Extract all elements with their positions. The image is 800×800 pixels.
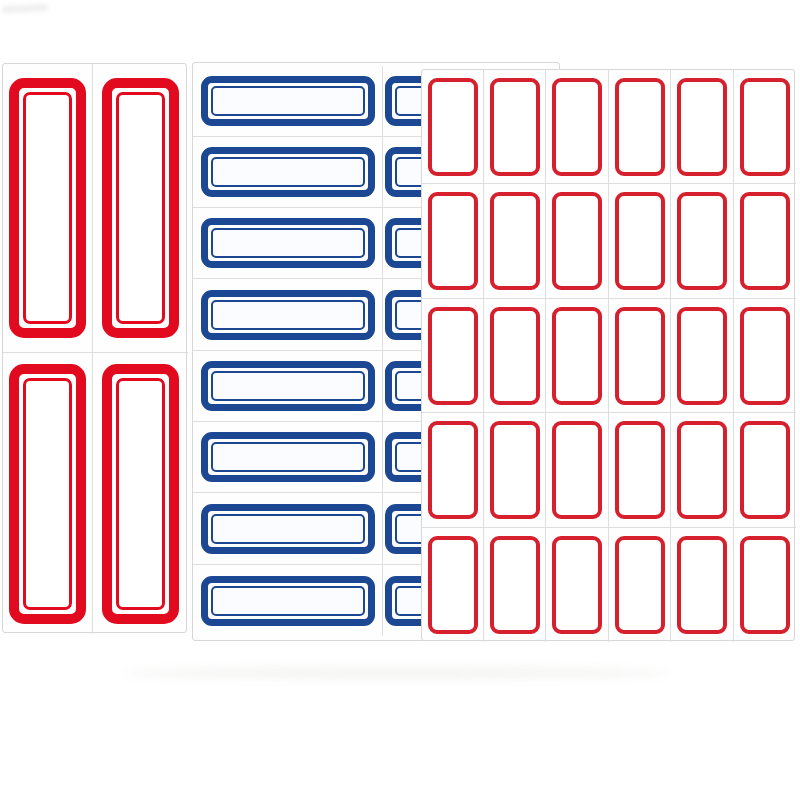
blank-sticker-label <box>677 192 727 290</box>
sticker-label-inner-frame <box>211 300 365 330</box>
blank-sticker-label <box>677 78 727 176</box>
sticker-label-inner-frame <box>211 586 365 616</box>
label-cell <box>3 64 93 353</box>
label-cell <box>93 353 188 634</box>
sheet-red-tall-labels <box>2 63 187 633</box>
label-cell <box>734 528 796 642</box>
label-cell <box>546 299 609 413</box>
label-cell <box>422 70 484 184</box>
blank-sticker-label <box>201 504 375 554</box>
blank-sticker-label <box>201 147 375 197</box>
label-cell <box>422 299 484 413</box>
label-cell <box>193 279 383 351</box>
label-cell <box>422 528 484 642</box>
sticker-label-inner-frame <box>211 371 365 401</box>
sheet-red-small-labels <box>421 69 795 641</box>
blank-sticker-label <box>490 78 540 176</box>
sticker-label-inner-frame <box>211 157 365 187</box>
blank-sticker-label <box>677 421 727 519</box>
blank-sticker-label <box>428 78 478 176</box>
blank-sticker-label <box>102 364 179 624</box>
sticker-label-inner-frame <box>211 442 365 472</box>
label-cell <box>422 413 484 528</box>
label-cell <box>3 353 93 634</box>
blank-sticker-label <box>201 361 375 411</box>
blank-sticker-label <box>201 576 375 626</box>
blank-sticker-label <box>201 218 375 268</box>
sticker-label-inner-frame <box>116 378 165 610</box>
label-cell <box>484 528 546 642</box>
sheet-red-small-labels-grid <box>422 70 796 642</box>
blank-sticker-label <box>490 536 540 634</box>
label-cell <box>484 70 546 184</box>
label-cell <box>93 64 188 353</box>
sheet-shadow <box>125 667 670 679</box>
label-cell <box>609 184 671 299</box>
label-cell <box>671 70 734 184</box>
label-cell <box>671 413 734 528</box>
label-cell <box>734 413 796 528</box>
label-cell <box>671 299 734 413</box>
label-cell <box>484 413 546 528</box>
label-cell <box>193 137 383 208</box>
blank-sticker-label <box>490 192 540 290</box>
label-cell <box>484 299 546 413</box>
label-cell <box>193 208 383 279</box>
blank-sticker-label <box>9 364 86 624</box>
sheet-red-tall-labels-grid <box>3 64 188 634</box>
blank-sticker-label <box>552 78 602 176</box>
label-cell <box>546 184 609 299</box>
blank-sticker-label <box>740 421 790 519</box>
blank-sticker-label <box>490 307 540 405</box>
label-cell <box>671 528 734 642</box>
blank-sticker-label <box>677 536 727 634</box>
label-cell <box>193 351 383 422</box>
blank-sticker-label <box>677 307 727 405</box>
blank-sticker-label <box>428 192 478 290</box>
label-cell <box>609 528 671 642</box>
label-cell <box>193 66 383 137</box>
label-cell <box>422 184 484 299</box>
blank-sticker-label <box>102 78 179 338</box>
blank-sticker-label <box>201 290 375 340</box>
photo-artifact-smudge <box>2 4 48 13</box>
blank-sticker-label <box>428 536 478 634</box>
label-cell <box>734 184 796 299</box>
blank-sticker-label <box>740 78 790 176</box>
blank-sticker-label <box>201 432 375 482</box>
label-cell <box>484 184 546 299</box>
label-cell <box>671 184 734 299</box>
blank-sticker-label <box>201 76 375 126</box>
label-cell <box>609 299 671 413</box>
blank-sticker-label <box>428 421 478 519</box>
sticker-label-inner-frame <box>23 92 72 324</box>
blank-sticker-label <box>740 536 790 634</box>
label-cell <box>546 413 609 528</box>
sticker-label-inner-frame <box>211 514 365 544</box>
label-cell <box>734 299 796 413</box>
sticker-label-inner-frame <box>211 86 365 116</box>
label-cell <box>734 70 796 184</box>
label-cell <box>193 493 383 565</box>
sticker-label-inner-frame <box>116 92 165 324</box>
sticker-label-inner-frame <box>23 378 72 610</box>
blank-sticker-label <box>552 536 602 634</box>
sticker-label-inner-frame <box>211 228 365 258</box>
blank-sticker-label <box>740 192 790 290</box>
blank-sticker-label <box>428 307 478 405</box>
blank-sticker-label <box>9 78 86 338</box>
label-cell <box>193 565 383 636</box>
blank-sticker-label <box>615 421 665 519</box>
label-cell <box>193 422 383 493</box>
label-cell <box>546 70 609 184</box>
blank-sticker-label <box>552 307 602 405</box>
blank-sticker-label <box>615 78 665 176</box>
blank-sticker-label <box>552 192 602 290</box>
blank-sticker-label <box>615 307 665 405</box>
blank-sticker-label <box>552 421 602 519</box>
label-cell <box>609 413 671 528</box>
blank-sticker-label <box>740 307 790 405</box>
blank-sticker-label <box>490 421 540 519</box>
label-cell <box>609 70 671 184</box>
label-cell <box>546 528 609 642</box>
blank-sticker-label <box>615 536 665 634</box>
product-photo-label-sheets <box>0 0 800 800</box>
blank-sticker-label <box>615 192 665 290</box>
